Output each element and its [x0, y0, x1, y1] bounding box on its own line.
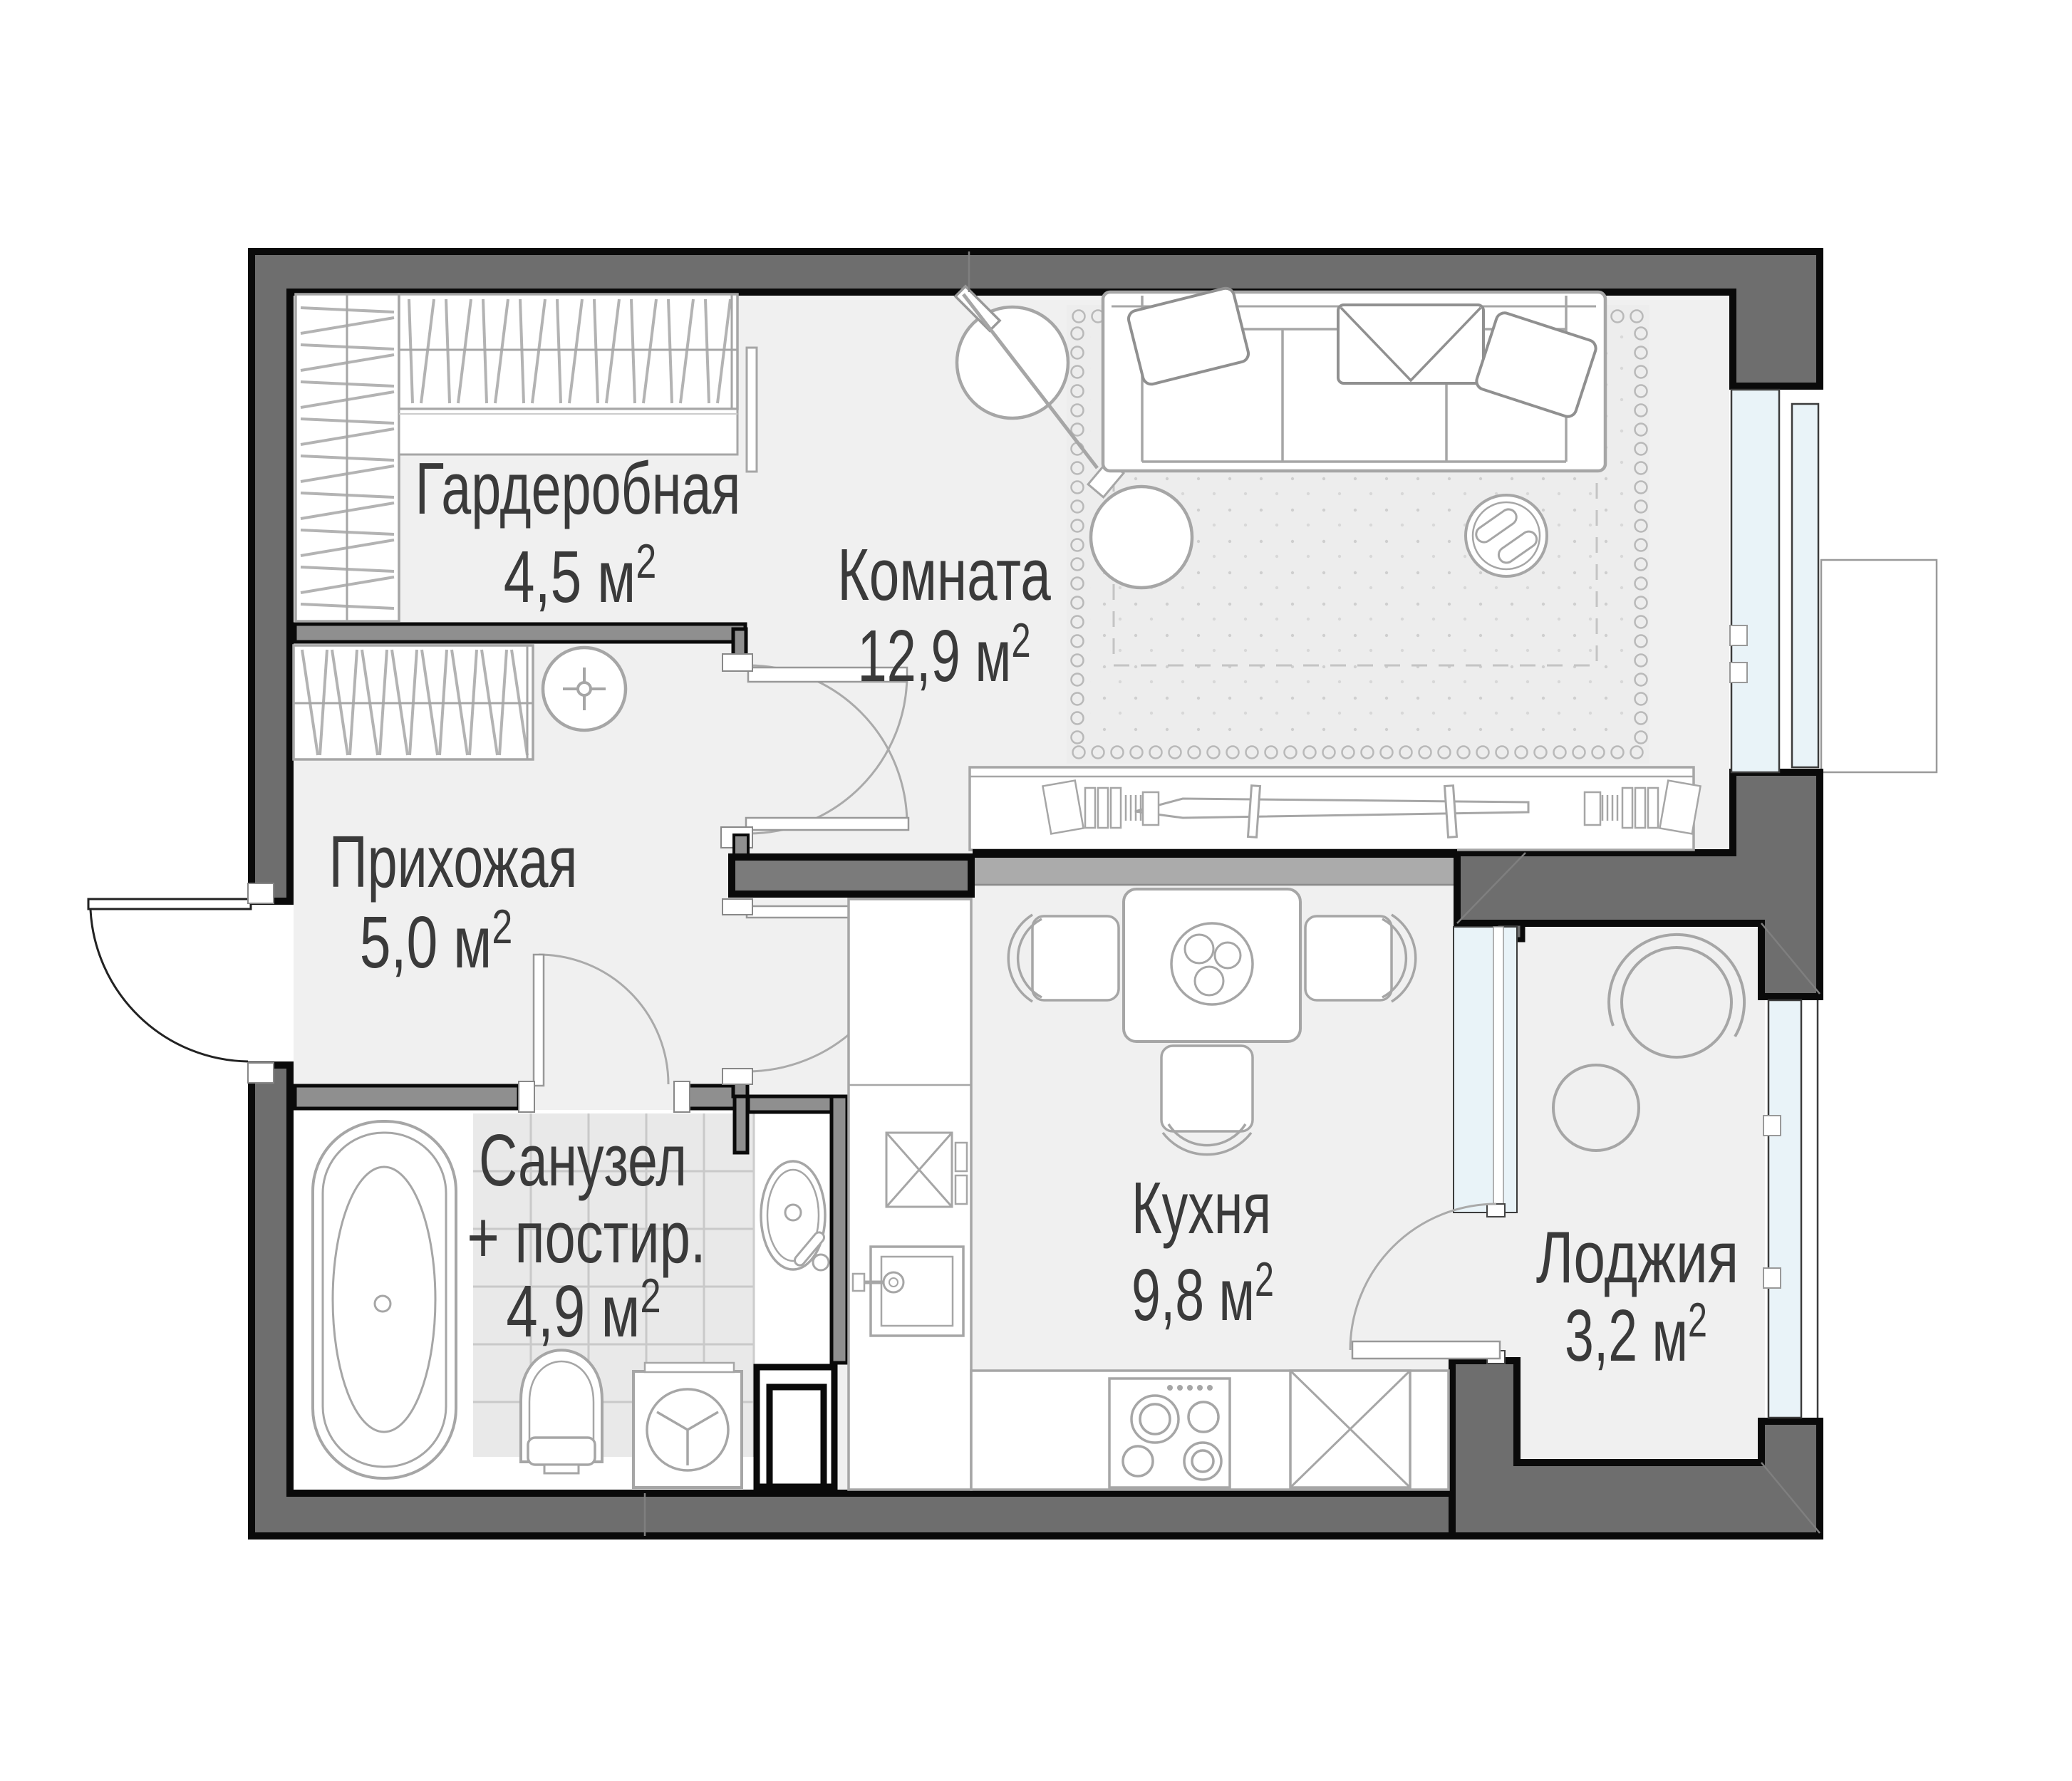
svg-text:9,8 м2: 9,8 м2 — [1131, 1252, 1274, 1336]
svg-text:Кухня: Кухня — [1131, 1167, 1271, 1249]
svg-text:5,0 м2: 5,0 м2 — [360, 899, 512, 983]
svg-text:Санузел: Санузел — [479, 1119, 687, 1201]
svg-text:Гардеробная: Гардеробная — [415, 448, 741, 530]
svg-text:4,9 м2: 4,9 м2 — [506, 1269, 661, 1353]
svg-text:Прихожая: Прихожая — [329, 821, 578, 903]
svg-text:3,2 м2: 3,2 м2 — [1565, 1293, 1707, 1376]
svg-text:4,5 м2: 4,5 м2 — [504, 534, 656, 618]
svg-text:+ постир.: + постир. — [467, 1196, 705, 1278]
svg-text:12,9 м2: 12,9 м2 — [857, 613, 1030, 697]
svg-text:Лоджия: Лоджия — [1536, 1215, 1739, 1298]
svg-text:Комната: Комната — [837, 534, 1051, 616]
